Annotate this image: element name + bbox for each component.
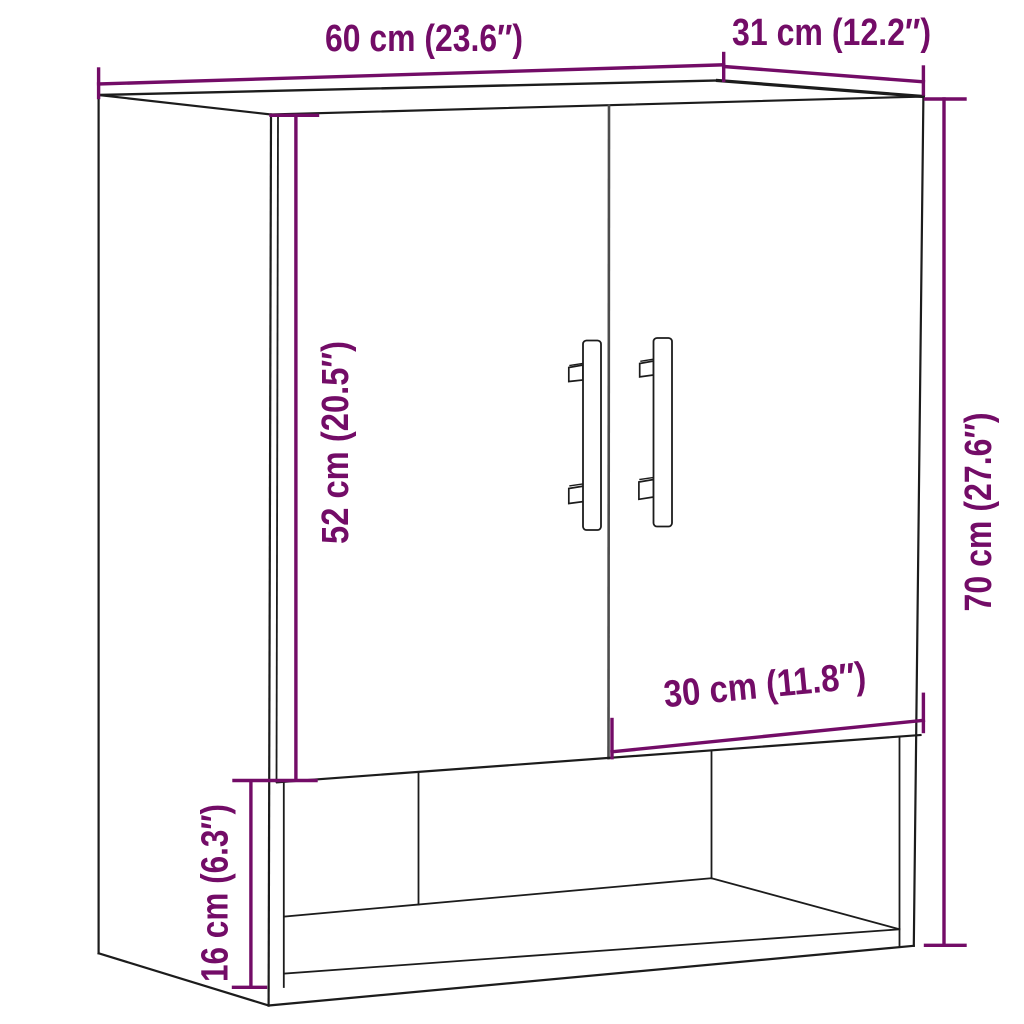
svg-text:16 cm (6.3″): 16 cm (6.3″) (195, 804, 237, 982)
svg-text:30 cm (11.8″): 30 cm (11.8″) (662, 655, 868, 716)
svg-text:70 cm (27.6″): 70 cm (27.6″) (958, 413, 1000, 612)
svg-text:31 cm (12.2″): 31 cm (12.2″) (732, 12, 931, 54)
svg-text:60 cm (23.6″): 60 cm (23.6″) (325, 18, 523, 60)
svg-text:52 cm (20.5″): 52 cm (20.5″) (315, 341, 357, 544)
